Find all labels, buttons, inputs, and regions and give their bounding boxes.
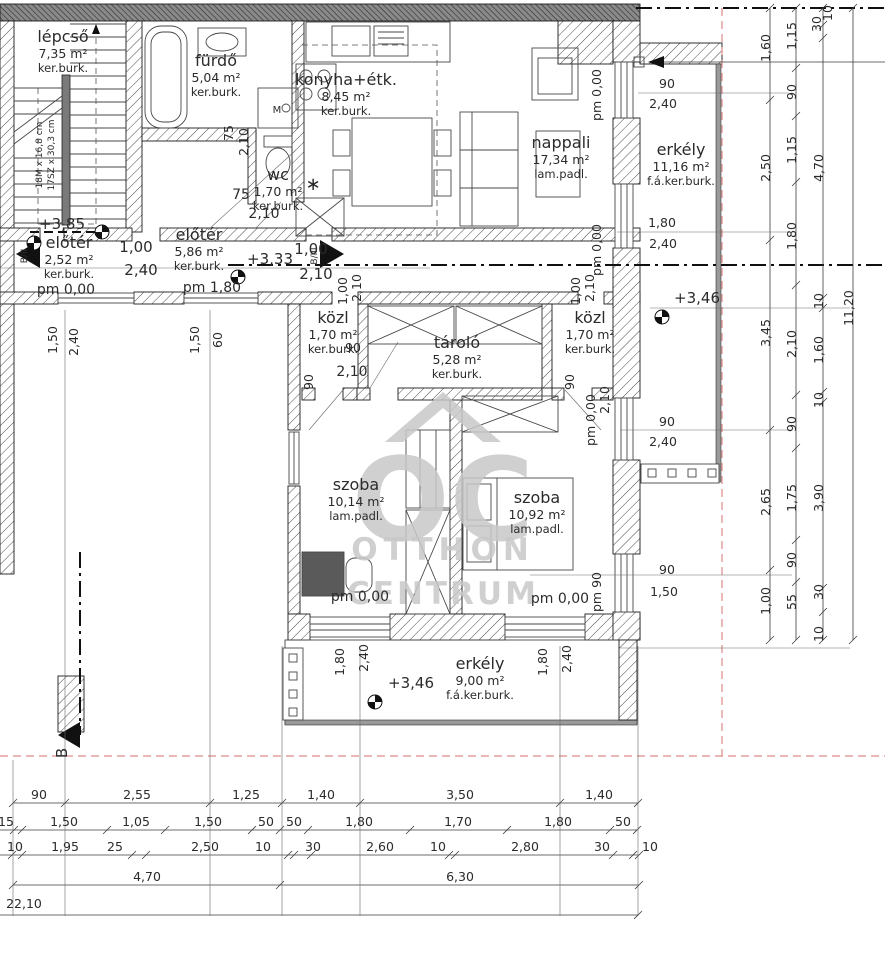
toilet [264,136,292,147]
dimension-label: 50 [286,814,302,829]
balcony-slab-edge [716,64,721,482]
dimension-label: 1,40 [307,787,335,802]
dimension-label: 90 [301,374,316,390]
logo-line1: OTTHON [351,532,535,568]
room-area: 1,70 m² [566,327,615,342]
dimension-label: 2,10 [236,128,251,156]
dimension-label: 11,20 [841,290,856,326]
bathroom-fixtures [145,26,298,178]
window-east-3 [615,398,633,460]
room-name: wc [267,165,289,184]
dimension-label: 1,80 [544,814,572,829]
dimension-label: 2,55 [123,787,151,802]
room-floor: f.á.ker.burk. [647,174,715,188]
dimension-label: 3,45 [758,319,773,347]
window-west-room [289,432,299,484]
dimension-label: 1,75 [784,484,799,512]
stair-wall [126,21,142,232]
elevation-marker-icon [368,695,382,709]
dimension-label: 1,70 [444,814,472,829]
dimension-label: 1,00 [119,238,152,256]
dimension-label: 2,10 [299,265,332,283]
north-wall-section [0,4,640,21]
dimension-label: pm 0,00 [583,394,598,446]
room-area: 10,92 m² [509,507,566,522]
kitchen-fixtures [296,22,451,236]
room-floor: lam.padl. [534,167,588,181]
dimension-label: 10 [811,392,826,408]
sofa [460,112,518,226]
dimension-label: 90 [659,562,675,577]
room-name: erkély [657,140,706,159]
dimension-label: 75 [221,125,236,141]
dimension-label: 4,70 [811,154,826,182]
dimension-label: 90 [345,340,361,355]
dimension-label: 1,50 [45,326,60,354]
dimension-label: 50 [258,814,274,829]
window-east-4 [615,554,633,612]
dimension-label: 2,50 [191,839,219,854]
dimension-label: 2,40 [649,96,677,111]
dimension-label: 30 [811,584,826,600]
room-name: erkély [456,654,505,673]
room-area: 1,70 m² [254,184,303,199]
dimension-label: ∗ [305,174,320,195]
dimension-label: 6,30 [446,869,474,884]
dimension-label: 2,60 [366,839,394,854]
room-floor: ker.burk. [38,61,88,75]
dimension-label: 17SZ x 30,3 cm [47,120,57,191]
dimension-label: 2,40 [124,261,157,279]
dimension-label: 75 [232,187,250,203]
dimension-label: 3,50 [446,787,474,802]
dimension-label: 1,15 [784,22,799,50]
dimension-label: 10 [820,5,835,21]
dimension-label: 1,50 [650,584,678,599]
dimension-label: 90 [562,374,577,390]
dimension-label: 2,40 [66,328,81,356]
window-east-2 [615,184,633,248]
room-area: 10,14 m² [328,494,385,509]
room-name: lépcső [37,27,88,46]
dimension-label: 18M x 16,8 cm [35,122,45,189]
dimension-label: pm 0,00 [331,589,389,605]
dimension-label: 10 [255,839,271,854]
floor-plan-drawing: OC OTTHON CENTRUM lépcső7,35 m²ker.burk.… [0,0,885,963]
dimension-label: 90 [784,552,799,568]
dimension-label: 1,50 [194,814,222,829]
dimension-label: 1,80 [345,814,373,829]
dimension-label: 2,40 [649,236,677,251]
room-name: konyha+étk. [295,70,397,89]
dimension-label: 90 [659,414,675,429]
dimension-label: 1,00 [568,277,583,305]
elevation-marker-icon [27,236,41,250]
dimension-label: 2,40 [559,645,574,673]
room-floor: ker.burk. [432,367,482,381]
dimension-label: 15 [0,814,14,829]
dimension-label: 2,80 [511,839,539,854]
dimension-label: 1,00 [294,240,327,258]
room-area: 7,35 m² [39,46,88,61]
dimension-label: 1,50 [187,326,202,354]
dimension-label: pm 0,00 [589,224,604,276]
west-wall [0,21,14,232]
room-floor: lam.padl. [329,509,383,523]
dimension-label: 3,90 [811,484,826,512]
dimension-label: 10 [7,839,23,854]
room-name: előtér [176,225,223,244]
dimension-label: 1,80 [535,648,550,676]
room-floor: f.á.ker.burk. [446,688,514,702]
dimension-label: pm 0,00 [531,591,589,607]
dimension-label: 90 [784,84,799,100]
dimension-label: 1,00 [758,587,773,615]
elevation-marker-icon [95,225,109,239]
room-name: szoba [514,488,560,507]
dimension-label: 22,10 [6,896,42,911]
dimension-label: 2,50 [758,154,773,182]
dimension-label: 10 [811,626,826,642]
room-area: 5,04 m² [192,70,241,85]
dimension-label: 50 [615,814,631,829]
room-name: fürdő [195,51,237,70]
dimension-label: pm 0,00 [589,69,604,121]
dimension-label: 90 [31,787,47,802]
floor-plan-page: OC OTTHON CENTRUM lépcső7,35 m²ker.burk.… [0,0,885,963]
dining-table [352,118,432,206]
room-name: előtér [46,233,93,252]
dimension-label: 1,50 [50,814,78,829]
dimension-label: B [53,748,71,758]
dimension-label: 10 [430,839,446,854]
railing-vertical [283,648,303,720]
room-area: 9,00 m² [456,673,505,688]
dimension-label: 1,95 [51,839,79,854]
dimension-label: pm 90 [589,572,604,612]
dimension-label: 1,60 [811,336,826,364]
dimension-label: M [273,105,282,116]
dimension-label: 10 [811,293,826,309]
stair-up-arrow [92,24,100,34]
dimension-label: 2,40 [649,434,677,449]
window-east-1 [615,62,633,118]
dimension-label: +3,85 [39,215,85,233]
dimension-label: 2,10 [597,386,612,414]
dimension-label: 30 [594,839,610,854]
dimension-label: B/II [20,249,30,264]
dimension-label: 1,40 [585,787,613,802]
dimension-label: 25 [107,839,123,854]
elevation-marker-icon [655,310,669,324]
dimension-label: 4,70 [133,869,161,884]
dimension-label: 90 [659,76,675,91]
room-floor: lam.padl. [510,522,564,536]
dimension-label: 55 [784,594,799,610]
dimension-label: 1,05 [122,814,150,829]
dimension-label: 30 [305,839,321,854]
room-name: közl [574,308,605,327]
room-area: 2,52 m² [45,252,94,267]
dimension-label: 2,10 [582,274,597,302]
dimension-label: +3,46 [388,674,434,692]
room-name: közl [317,308,348,327]
room-floor: ker.burk. [44,267,94,281]
room-name: nappali [532,133,591,152]
room-floor: ker.burk. [174,259,224,273]
dimension-label: 1,15 [784,136,799,164]
balcony-upper [641,64,721,483]
dimension-label: 10 [642,839,658,854]
room-area: 8,45 m² [322,89,371,104]
room-area: 5,86 m² [175,244,224,259]
room-area: 11,16 m² [653,159,710,174]
dimension-label: 2,10 [349,274,364,302]
window-south-1 [310,617,390,637]
dimension-label: 1,25 [232,787,260,802]
dimension-label: 2,40 [356,644,371,672]
dimension-label: 2,10 [248,206,279,222]
dimension-label: 2,65 [758,488,773,516]
dimension-label: +3,33 [247,250,293,268]
dimension-label: 1,60 [758,34,773,62]
dimension-label: 1,80 [648,215,676,230]
dimension-label: 2,10 [784,330,799,358]
room-area: 5,28 m² [433,352,482,367]
dimension-label: 1,80 [332,648,347,676]
dimension-label: 2,10 [336,364,367,380]
kitchen-sink [332,26,370,56]
dimension-label: 90 [784,416,799,432]
room-floor: ker.burk. [565,342,615,356]
storage-door-swing [370,342,398,388]
railing-horizontal [641,464,719,483]
dimension-label: pm 1,80 [183,280,241,296]
dimension-label: pm 0,00 [37,282,95,298]
dimension-label: 1,00 [335,277,350,305]
room-name: tároló [434,333,480,352]
dimension-label: 1,80 [784,222,799,250]
room-floor: ker.burk. [321,104,371,118]
room-name: szoba [333,475,379,494]
window-south-2 [505,617,585,637]
dimension-label: +3,46 [674,289,720,307]
room-floor: ker.burk. [191,85,241,99]
dimension-label: 60 [210,332,225,348]
room-area: 17,34 m² [533,152,590,167]
